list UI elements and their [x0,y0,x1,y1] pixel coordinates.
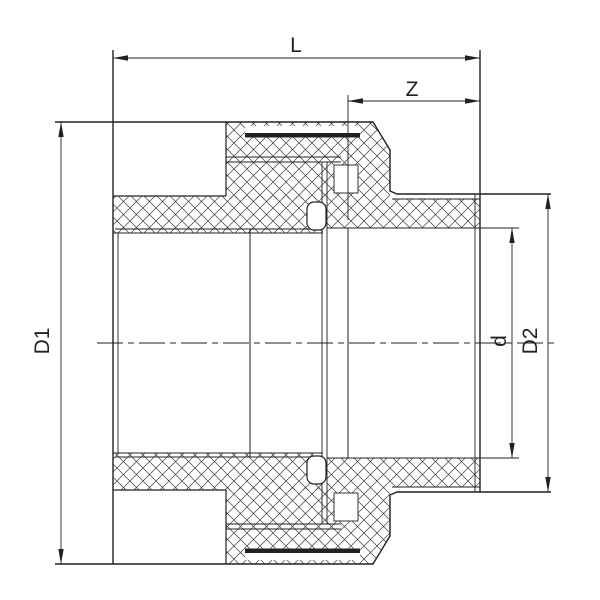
arrow-L-left [113,55,128,60]
thread-relief-top [245,126,360,133]
left-body-wall-top [113,196,323,233]
arrow-Z-left [348,98,363,103]
right-body-wall-top [327,199,480,228]
right-body-wall-bottom [327,458,480,487]
drawing-canvas: L Z D1 d D2 [0,0,600,600]
thread-runout-notch-top [334,165,358,193]
oring-seal-bottom [307,456,326,484]
dim-label-Z: Z [406,78,419,101]
oring-seal-top [307,202,326,230]
arrow-L-right [465,55,480,60]
thread-crest-bottom [245,549,360,554]
nut-shell-top [113,122,226,196]
thread-relief-bottom [245,553,360,560]
union-fitting-technical-drawing: L Z D1 d D2 [0,0,600,600]
nut-shell-bottom [113,490,226,564]
arrow-d-bottom [509,443,514,458]
arrow-D2-bottom [545,477,550,492]
arrow-Z-right [465,98,480,103]
dim-label-L: L [290,34,302,57]
dim-label-d: d [488,335,511,347]
dim-label-D1: D1 [31,328,54,355]
arrow-d-top [509,228,514,243]
arrow-D1-bottom [58,549,63,564]
dim-label-D2: D2 [519,328,542,355]
arrow-D1-top [58,122,63,137]
thread-runout-notch-bottom [334,493,358,521]
thread-crest-top [245,133,360,138]
left-body-wall-bottom [113,453,323,490]
arrow-D2-top [545,194,550,209]
